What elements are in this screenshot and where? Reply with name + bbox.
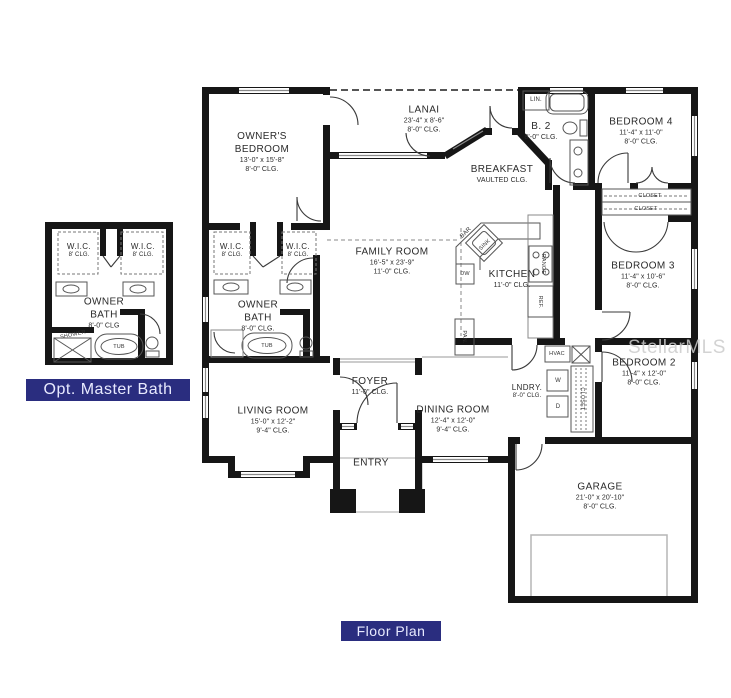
dryer-label: D [556,404,561,410]
laundry-closet-label: CLOSET [579,387,585,410]
room-name: DINING ROOM [416,403,489,416]
tub-opt-label: TUB [113,344,125,350]
room-clg: 8'-0" CLG. [241,324,274,333]
room-clg: 8'-0" CLG. [245,165,278,174]
room-label-family-room: FAMILY ROOM 16'-5" x 23'-9" 11'-0" CLG. [337,245,447,276]
room-label-entry: ENTRY [336,457,406,470]
room-label-dining-room: DINING ROOM 12'-4" x 12'-0" 9'-4" CLG. [403,403,503,434]
room-clg: 8'-0" CLG. [624,138,657,147]
room-name: W.I.C. [67,242,91,252]
room-name: W.I.C. [286,242,310,252]
room-name: LIVING ROOM [237,404,308,417]
dishwasher-label: DW [460,271,470,277]
room-label-lanai: LANAI 23'-4" x 8'-6" 8'-0" CLG. [379,103,469,134]
room-name: LANAI [409,103,440,116]
room-label-foyer: FOYER 11'-0" CLG. [335,375,405,397]
room-name: FOYER [352,375,388,388]
room-clg: 11'-0" CLG. [352,388,389,397]
room-clg: 11'-0" CLG. [494,281,531,290]
room-name: FAMILY ROOM [356,245,429,258]
garage-door-outline [531,535,667,597]
room-name: BREAKFAST [471,163,534,176]
room-name: OWNER BATH [233,298,283,324]
hvac-label: HVAC [549,351,565,357]
room-name: OWNER'S BEDROOM [230,130,294,156]
room-name: B. 2 [531,120,550,133]
room-clg: 8'-0" CLG. [583,503,616,512]
room-dims: 12'-4" x 12'-0" [431,416,476,425]
room-clg: 9'-4" CLG. [256,427,289,436]
room-clg: 8'-0" CLG [88,321,119,330]
washer-label: W [555,378,561,384]
room-dims: 21'-0" x 20'-10" [576,493,625,502]
room-clg: 8' CLG. [288,252,309,260]
room-dims: 16'-5" x 23'-9" [370,258,415,267]
room-dims: 13'-0" x 15'-8" [240,156,285,165]
room-name: LNDRY. [512,383,543,393]
room-clg: 8'-0" CLG. [627,379,660,388]
room-clg: 8' CLG. [133,252,154,260]
room-name: ENTRY [353,457,389,470]
room-label-breakfast: BREAKFAST VAULTED CLG. [457,163,547,185]
caption-floor-plan: Floor Plan [341,621,441,641]
room-label-owner-bath-opt: OWNER BATH 8'-0" CLG [79,295,129,330]
linen-closet-label: LIN. [530,97,542,103]
room-clg: 8'-0" CLG. [513,393,542,401]
room-name: KITCHEN [489,268,536,281]
room-clg: 8' CLG. [69,252,90,260]
room-label-wic-main-right: W.I.C. 8' CLG. [278,242,318,260]
room-label-laundry: LNDRY. 8'-0" CLG. [505,383,550,401]
refrigerator-label: REF. [537,296,543,309]
floorplan-drawing [0,0,731,698]
tub-main-label: TUB [261,343,273,349]
room-clg: 11'-0" CLG. [374,268,411,277]
range-label: RANGE [540,254,546,275]
floor-plan-page: OWNER'S BEDROOM 13'-0" x 15'-8" 8'-0" CL… [0,0,731,698]
room-label-kitchen: KITCHEN 11'-0" CLG. [477,268,547,290]
room-name: BEDROOM 4 [609,115,673,128]
caption-opt-master-bath: Opt. Master Bath [26,379,190,401]
room-clg: 8' CLG. [222,252,243,260]
room-name: BEDROOM 3 [611,259,675,272]
room-clg: 8'-0" CLG. [626,282,659,291]
room-clg: 8'-0" CLG. [524,133,557,142]
room-name: OWNER BATH [79,295,129,321]
room-name: W.I.C. [131,242,155,252]
room-label-wic-main-left: W.I.C. 8' CLG. [212,242,252,260]
room-label-bath2: B. 2 8'-0" CLG. [511,120,571,142]
room-dims: 11'-4" x 12'-0" [622,369,666,378]
room-dims: 11'-4" x 10'-6" [621,272,665,281]
room-dims: 15'-0" x 12'-2" [251,417,296,426]
room-label-bedroom4: BEDROOM 4 11'-4" x 11'-0" 8'-0" CLG. [596,115,686,146]
room-dims: 23'-4" x 8'-6" [404,116,445,125]
room-clg: 8'-0" CLG. [407,126,440,135]
room-clg: VAULTED CLG. [477,176,528,185]
ceiling-break-lines [340,357,508,362]
bedroom3-closet-label: CLOSET [634,206,657,212]
room-label-bedroom3: BEDROOM 3 11'-4" x 10'-6" 8'-0" CLG. [598,259,688,290]
room-dims: 11'-4" x 11'-0" [619,128,663,137]
room-label-owner-bath-main: OWNER BATH 8'-0" CLG. [233,298,283,333]
room-name: GARAGE [577,480,622,493]
room-label-bedroom2: BEDROOM 2 11'-4" x 12'-0" 8'-0" CLG. [599,356,689,387]
room-clg: 9'-4" CLG. [436,426,469,435]
bedroom4-closet-label: CLOSET [638,193,661,199]
room-name: W.I.C. [220,242,244,252]
stellar-mls-watermark: StellarMLS [628,337,726,359]
room-label-garage: GARAGE 21'-0" x 20'-10" 8'-0" CLG. [545,480,655,511]
ceiling-dashed-lines [327,228,461,336]
room-label-owners-bedroom: OWNER'S BEDROOM 13'-0" x 15'-8" 8'-0" CL… [230,130,294,174]
pantry-label: PAN. [461,330,467,343]
room-label-wic-opt-left: W.I.C. 8' CLG. [59,242,99,260]
room-label-living-room: LIVING ROOM 15'-0" x 12'-2" 9'-4" CLG. [218,404,328,435]
room-label-wic-opt-right: W.I.C. 8' CLG. [123,242,163,260]
